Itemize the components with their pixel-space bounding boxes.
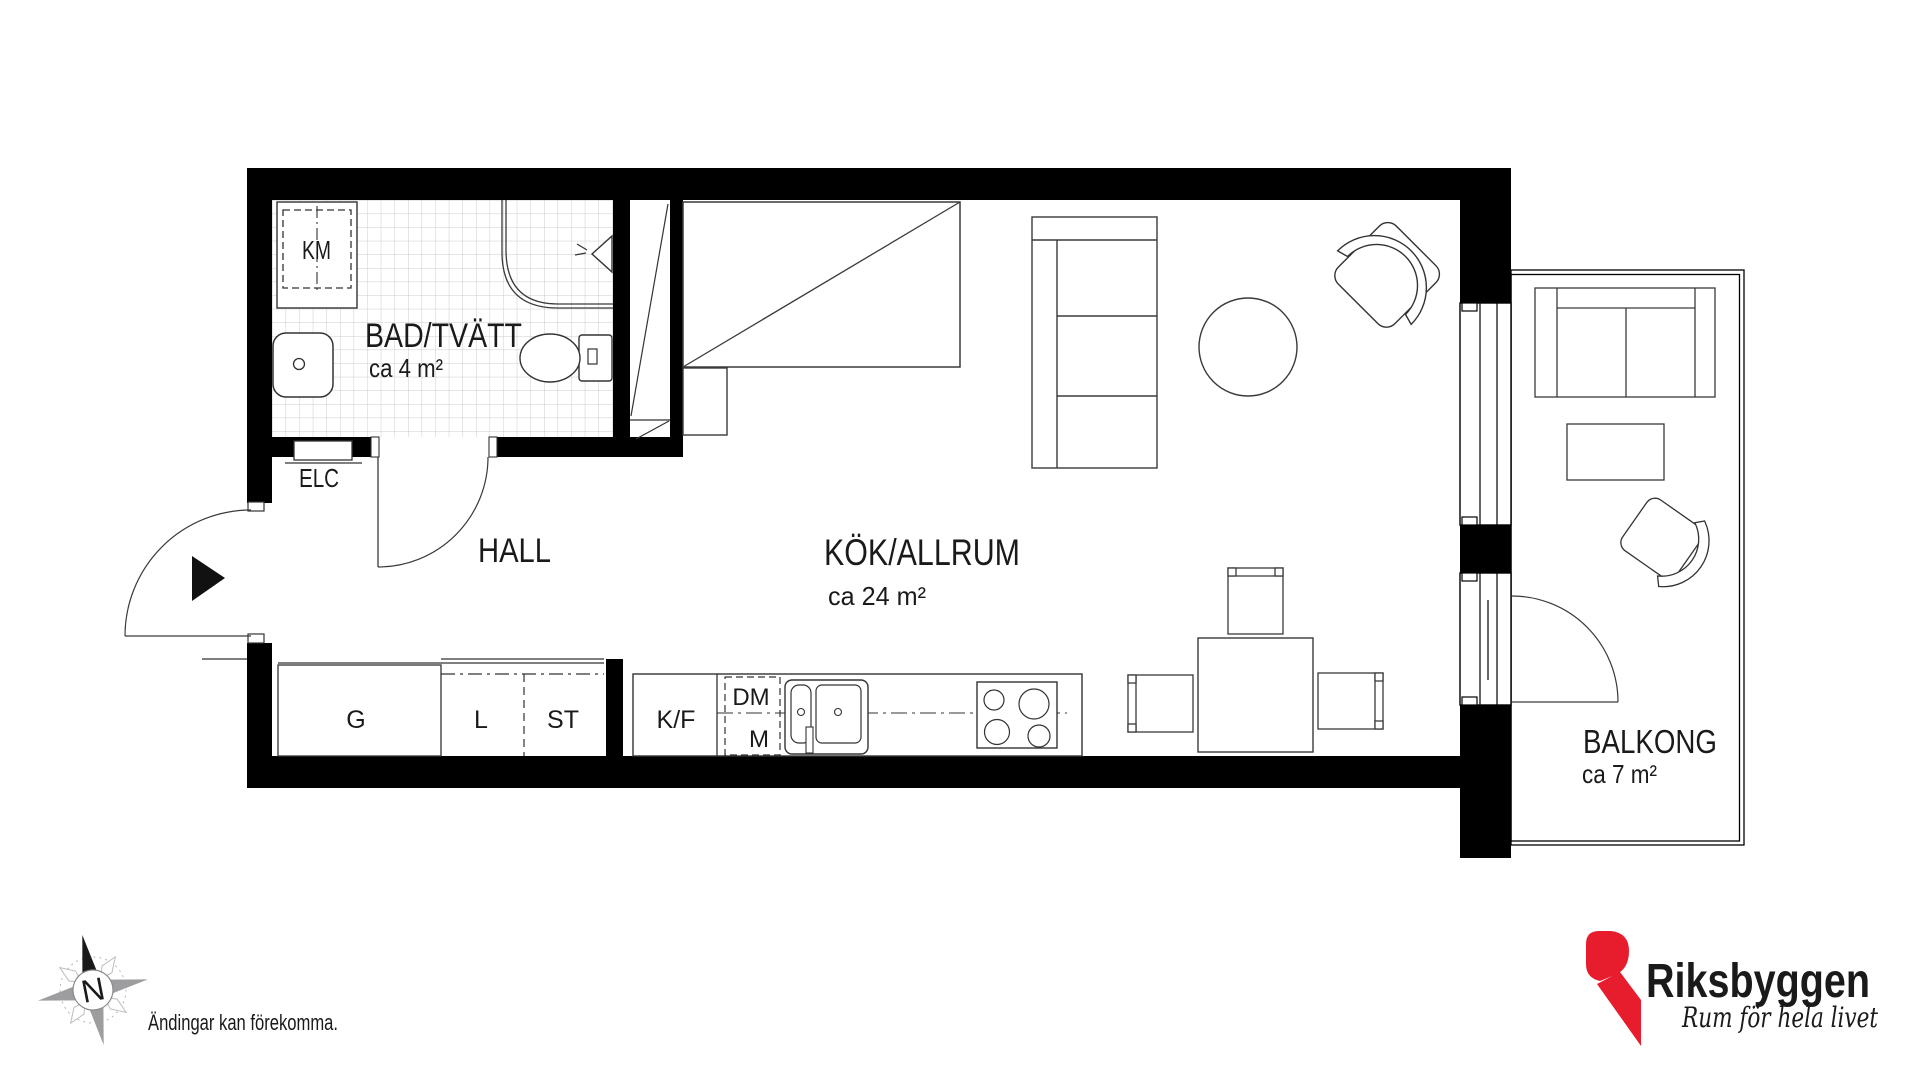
- brand-tagline: Rum för hela livet: [1681, 1001, 1878, 1034]
- balcony-chair: [1611, 488, 1723, 600]
- wall-alcove-pier: [670, 200, 683, 457]
- room-label-kitchen-living: KÖK/ALLRUM: [824, 532, 1020, 573]
- room-area-bathroom: ca 4 m²: [369, 353, 443, 383]
- dining-chair-left: [1128, 675, 1193, 732]
- dishwasher-label: DM: [732, 684, 769, 711]
- brand-logo: Riksbyggen Rum för hela livet: [1586, 931, 1879, 1046]
- cleaning-cabinet-label: ST: [547, 706, 579, 734]
- stove: [977, 682, 1057, 748]
- disclaimer-text: Ändingar kan förekomma.: [148, 1010, 338, 1035]
- room-label-hall: HALL: [478, 532, 551, 570]
- bed: [683, 202, 960, 367]
- nightstand: [683, 368, 727, 435]
- floorplan-drawing: BAD/TVÄTT ca 4 m² HALL KÖK/ALLRUM ca 24 …: [0, 0, 1920, 1080]
- wall-top: [247, 168, 1511, 200]
- floorplan-page: BAD/TVÄTT ca 4 m² HALL KÖK/ALLRUM ca 24 …: [0, 0, 1920, 1080]
- wall-kitchen-pier: [606, 659, 623, 756]
- wardrobe-g-label: G: [346, 706, 365, 734]
- bathroom-sink: [273, 333, 333, 397]
- room-area-balcony: ca 7 m²: [1582, 759, 1657, 789]
- wall-right-top: [1460, 200, 1511, 303]
- compass-icon: N: [27, 924, 158, 1055]
- brand-logo-icon: [1586, 931, 1641, 1046]
- dining-table: [1198, 638, 1313, 752]
- entry-door: [125, 502, 264, 643]
- electrical-cabinet-label: ELC: [299, 463, 339, 493]
- tall-cabinet: [630, 204, 670, 439]
- wall-bath-east: [613, 200, 630, 457]
- toilet: [520, 334, 612, 382]
- balcony-table: [1567, 424, 1664, 480]
- armchair: [1321, 209, 1453, 341]
- wall-right-mid: [1460, 525, 1511, 573]
- wall-left-upper: [247, 200, 272, 503]
- coffee-table: [1199, 298, 1297, 396]
- washing-machine-label: KM: [302, 235, 331, 265]
- sofa: [1032, 217, 1157, 468]
- dining-chair-right: [1318, 673, 1383, 729]
- wall-bath-south-right: [497, 437, 683, 457]
- dining-chair-top: [1228, 568, 1283, 634]
- wall-right-bottom: [1460, 705, 1511, 858]
- balcony-door-swing: [1512, 596, 1618, 702]
- balcony-door-window: [1460, 573, 1511, 705]
- linen-cabinet-label: L: [474, 706, 488, 734]
- dining-set: [1128, 568, 1383, 752]
- room-label-balcony: BALKONG: [1583, 723, 1717, 760]
- balcony-sofa: [1535, 288, 1715, 397]
- wall-bottom: [247, 756, 1511, 788]
- fridge-freezer-label: K/F: [657, 706, 696, 734]
- entry-arrow-icon: [192, 556, 225, 601]
- room-area-kitchen-living: ca 24 m²: [828, 581, 926, 611]
- kitchen-counter: [633, 674, 1082, 756]
- wall-left-lower: [247, 643, 272, 756]
- electrical-cabinet: [285, 441, 362, 463]
- micro-label: M: [749, 726, 769, 753]
- window-upper: [1460, 303, 1511, 525]
- room-label-bathroom: BAD/TVÄTT: [365, 317, 522, 355]
- kitchen-sink: [785, 680, 868, 754]
